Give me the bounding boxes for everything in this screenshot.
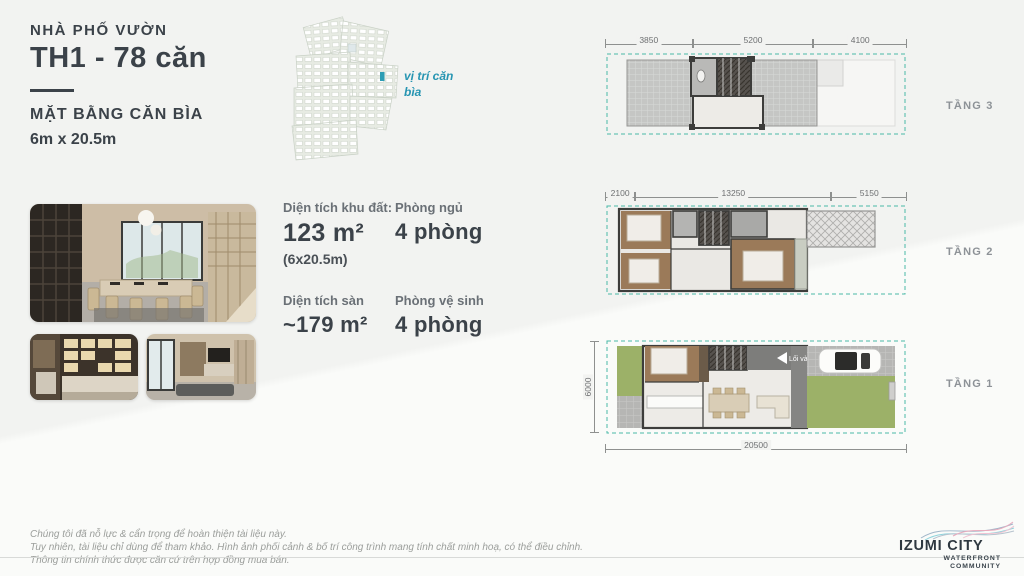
siteplan-graphic [286,14,404,164]
unit-marker [380,72,385,81]
brochure-page: NHÀ PHỐ VƯỜN TH1 - 78 căn MẶT BẰNG CĂN B… [0,0,1024,576]
izumi-city-logo: IZUMI CITY WATERFRONT COMMUNITY [897,518,1015,568]
footer-divider [0,557,1024,558]
land-area-label: Diện tích khu đất: [283,200,395,215]
bathrooms-label: Phòng vệ sinh [395,293,513,308]
floor1-plan-graphic: Lối vào [605,338,907,436]
dim-value: 5200 [741,35,766,45]
header-block: NHÀ PHỐ VƯỜN TH1 - 78 căn MẶT BẰNG CĂN B… [30,22,207,149]
shelf-image [30,334,138,400]
dim-value: 2100 [608,188,633,198]
dim-value: 20500 [741,440,771,450]
floor1-left-dimension: 6000 [586,341,598,433]
floor-area-value: ~179 m² [283,312,395,338]
siteplan-marker-label: vị trí căn bìa [404,68,474,100]
disclaimer-line: Chúng tôi đã nỗ lực & cẩn trọng để hoàn … [30,528,583,541]
spec-floor-area: Diện tích sàn ~179 m² [283,293,395,338]
dim-value: 5150 [857,188,882,198]
spec-bathrooms: Phòng vệ sinh 4 phòng [395,293,513,338]
floor3-dimensions: 3850 5200 4100 [605,35,907,48]
floor3-plan-graphic [605,50,907,138]
car-top-view [819,349,881,373]
floorplan-floor1: Lối vào [605,338,907,436]
dim-value: 13250 [719,188,749,198]
dim-value: 6000 [583,375,593,400]
interior-photo-shelf [30,334,138,400]
interior-photo-bedroom [146,334,256,400]
logo-title: IZUMI CITY [899,538,984,554]
title-divider [30,89,74,92]
land-area-value: 123 m² [283,219,395,248]
specs-block: Diện tích khu đất: 123 m² (6x20.5m) Phòn… [283,200,513,338]
unit-size: 6m x 20.5m [30,131,207,149]
floor2-dimensions: 2100 13250 5150 [605,188,907,201]
floor1-bottom-dimension: 20500 [605,440,907,453]
bedrooms-value: 4 phòng [395,219,513,245]
floorplan-floor3 [605,50,907,138]
bathrooms-value: 4 phòng [395,312,513,338]
disclaimer-text: Chúng tôi đã nỗ lực & cẩn trọng để hoàn … [30,528,583,568]
bedroom-image [146,334,256,400]
dining-room-image [30,204,256,322]
spec-land-area: Diện tích khu đất: 123 m² (6x20.5m) [283,200,395,267]
siteplan-map [286,14,404,164]
floor1-label: TẦNG 1 [946,378,994,390]
logo-subtitle-2: COMMUNITY [950,563,1001,570]
subtitle: MẶT BẰNG CĂN BÌA [30,106,207,124]
floorplan-floor2 [605,203,907,298]
land-area-dims: (6x20.5m) [283,251,395,267]
disclaimer-line: Tuy nhiên, tài liệu chỉ dùng để tham khả… [30,541,583,554]
floor3-label: TẦNG 3 [946,100,994,112]
dim-value: 3850 [636,35,661,45]
floor2-plan-graphic [605,203,907,298]
spec-bedrooms: Phòng ngủ 4 phòng [395,200,513,267]
dim-value: 4100 [848,35,873,45]
floor-area-label: Diện tích sàn [283,293,395,308]
page-title: TH1 - 78 căn [30,42,207,75]
logo-subtitle-1: WATERFRONT [944,555,1001,562]
category-label: NHÀ PHỐ VƯỜN [30,22,207,39]
floor2-label: TẦNG 2 [946,246,994,258]
bedrooms-label: Phòng ngủ [395,200,513,215]
interior-photo-dining [30,204,256,322]
